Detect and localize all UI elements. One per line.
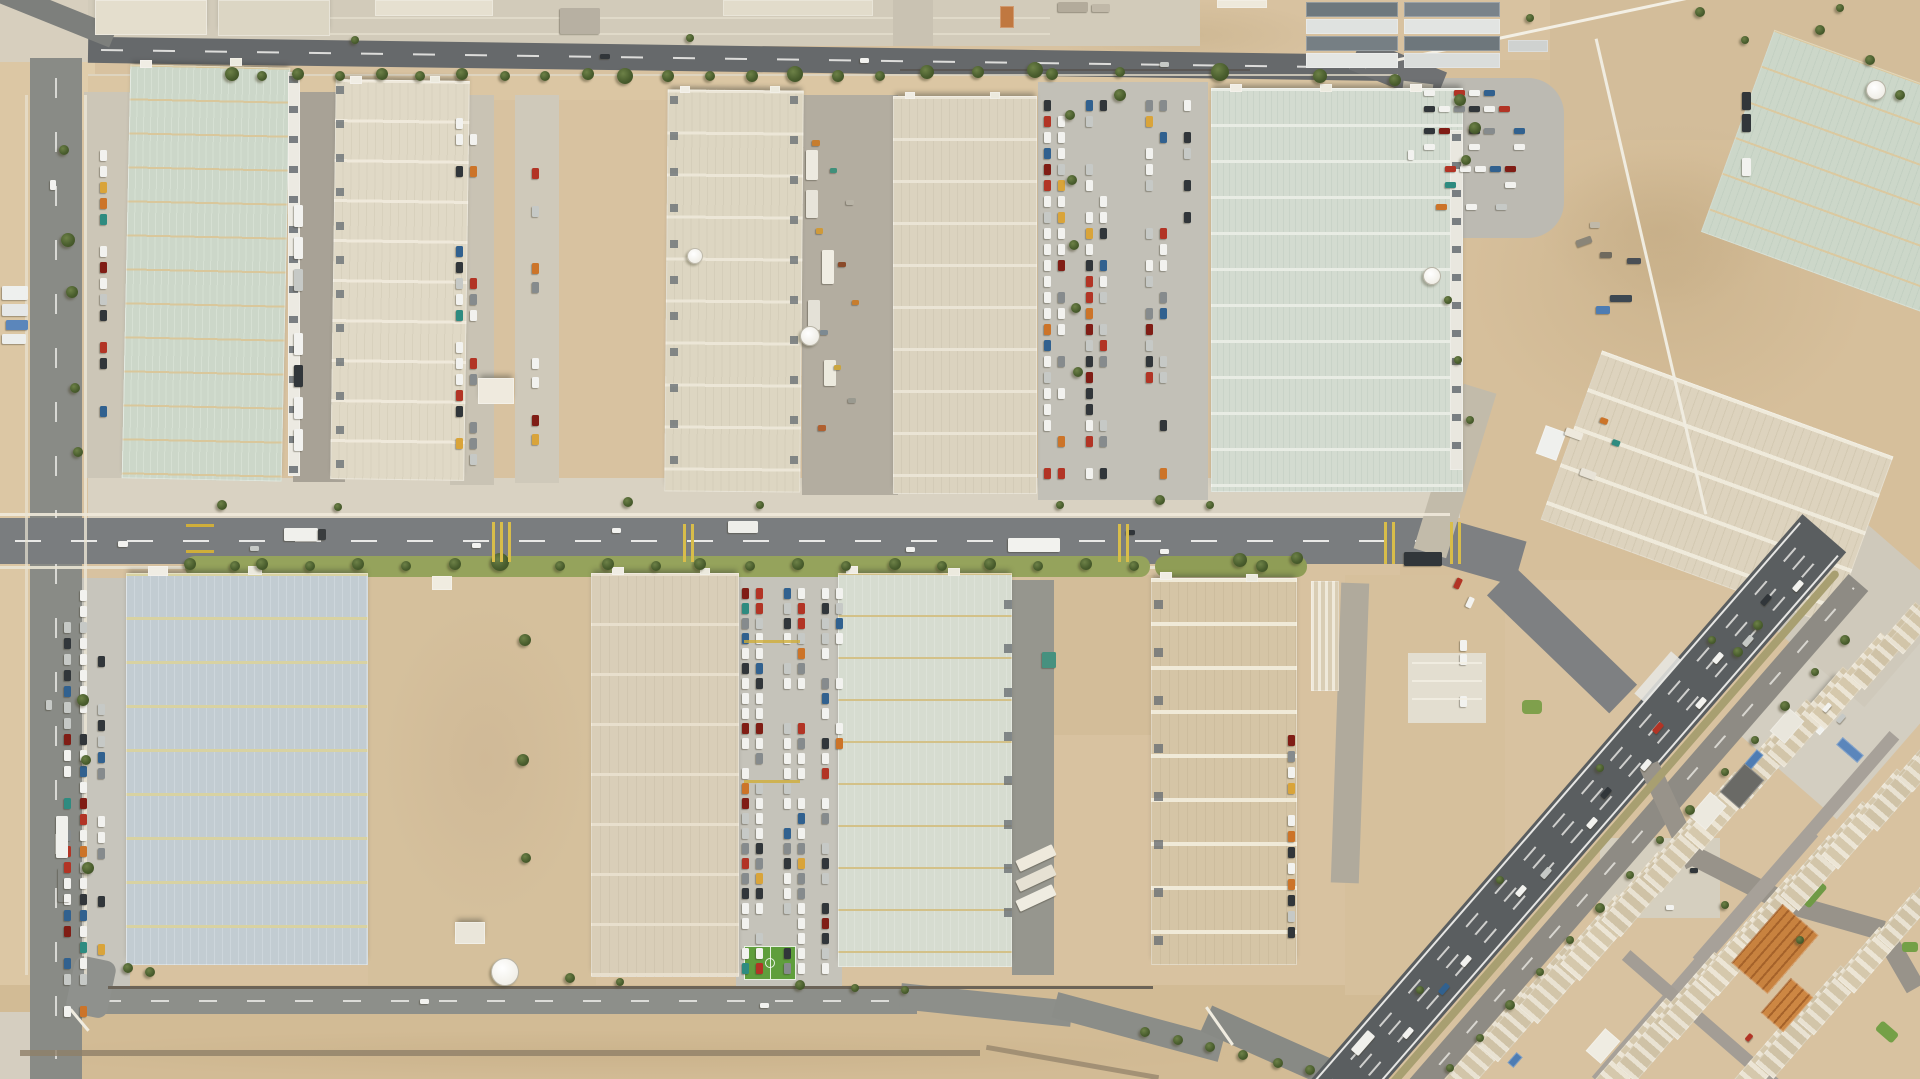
parked-car	[64, 718, 71, 729]
parked-car	[1044, 372, 1051, 383]
tree	[70, 383, 80, 393]
parked-car	[80, 830, 87, 841]
clutter	[2, 334, 26, 344]
warehouse-s3-mint	[838, 573, 1012, 967]
tree	[832, 70, 844, 82]
tree	[937, 561, 947, 571]
parked-car	[1288, 911, 1295, 922]
parked-car	[1496, 204, 1507, 210]
roof-unit	[350, 76, 362, 84]
parked-car	[456, 342, 463, 353]
parked-car	[100, 278, 107, 289]
parked-car	[1742, 158, 1751, 176]
parked-car	[1044, 468, 1051, 479]
parked-car	[80, 766, 87, 777]
parked-car	[1086, 276, 1093, 287]
tree	[1027, 62, 1043, 78]
clutter	[806, 190, 818, 218]
parked-car	[80, 926, 87, 937]
parked-car	[1058, 356, 1065, 367]
parked-car	[756, 828, 763, 839]
tree	[1033, 561, 1043, 571]
parked-car	[1160, 260, 1167, 271]
parked-car	[1160, 100, 1167, 111]
parked-car	[1160, 228, 1167, 239]
parked-car	[100, 310, 107, 321]
clutter	[818, 425, 826, 431]
parked-car	[798, 843, 805, 854]
parked-car	[1184, 180, 1191, 191]
parked-car	[822, 693, 829, 704]
parked-car	[1160, 308, 1167, 319]
parked-car	[80, 974, 87, 985]
parked-car	[798, 813, 805, 824]
car	[760, 1003, 769, 1008]
truck-left-road	[56, 816, 68, 858]
parked-car	[1424, 90, 1435, 96]
parked-car	[100, 150, 107, 161]
car	[420, 999, 429, 1004]
parked-car	[1058, 180, 1065, 191]
parked-car	[456, 374, 463, 385]
parked-car	[798, 618, 805, 629]
parked-car	[456, 358, 463, 369]
parked-car	[80, 846, 87, 857]
parked-car	[80, 654, 87, 665]
parked-car	[1288, 751, 1295, 762]
tree	[623, 497, 633, 507]
parked-car	[1058, 196, 1065, 207]
tree	[1721, 768, 1729, 776]
parked-car	[1044, 260, 1051, 271]
tree	[582, 68, 594, 80]
parked-car	[1044, 356, 1051, 367]
parked-car	[100, 358, 107, 369]
parked-car	[1469, 144, 1480, 150]
car	[472, 543, 481, 548]
green-res-2	[1875, 1020, 1899, 1043]
tree	[1496, 876, 1504, 884]
tree	[1526, 14, 1534, 22]
tree	[1741, 36, 1749, 44]
parked-car	[1288, 767, 1295, 778]
car	[1160, 549, 1169, 554]
clutter	[6, 320, 28, 330]
parked-car	[80, 910, 87, 921]
parked-car	[822, 948, 829, 959]
warehouse-sw-bluegray	[126, 573, 368, 965]
parked-car	[470, 166, 477, 177]
tree	[1080, 558, 1092, 570]
parked-car	[742, 828, 749, 839]
parked-car	[822, 903, 829, 914]
tree	[1626, 871, 1634, 879]
parked-car	[1160, 356, 1167, 367]
tree	[184, 558, 196, 570]
tree	[1476, 1034, 1484, 1042]
parked-car	[98, 816, 105, 827]
parked-car	[80, 1006, 87, 1017]
tree	[795, 980, 805, 990]
roof-unit	[990, 92, 1000, 99]
clutter	[834, 365, 841, 370]
parked-car	[1100, 420, 1107, 431]
parked-car	[532, 206, 539, 217]
tree	[540, 71, 550, 81]
parked-car	[822, 618, 829, 629]
ground-soft	[380, 600, 590, 920]
parked-car	[456, 278, 463, 289]
tree	[1796, 936, 1804, 944]
parked-car	[1146, 356, 1153, 367]
parked-car	[784, 618, 791, 629]
tree	[1721, 901, 1729, 909]
parked-car	[742, 708, 749, 719]
parked-car	[836, 618, 843, 629]
parked-car	[532, 415, 539, 426]
parked-car	[64, 622, 71, 633]
parked-car	[1086, 228, 1093, 239]
container-row	[1404, 36, 1500, 51]
parked-car	[742, 768, 749, 779]
slab-nw-b	[218, 0, 330, 36]
parked-car	[1058, 468, 1065, 479]
parked-car	[1058, 308, 1065, 319]
parked-car	[742, 663, 749, 674]
parked-car	[756, 723, 763, 734]
car	[1408, 150, 1414, 160]
parked-car	[1288, 831, 1295, 842]
warehouse-s2-beige	[591, 573, 739, 977]
parked-car	[742, 888, 749, 899]
pad-grid-line	[1412, 662, 1482, 664]
parked-car	[1469, 90, 1480, 96]
car	[1160, 62, 1169, 67]
warehouse-n2-beige	[330, 79, 470, 481]
parked-car	[470, 294, 477, 305]
parked-car	[98, 848, 105, 859]
parked-car	[756, 588, 763, 599]
hut-orange-top	[1000, 6, 1014, 28]
parked-car	[756, 678, 763, 689]
parked-car	[784, 768, 791, 779]
tree	[77, 694, 89, 706]
yellow-cross	[1118, 524, 1121, 562]
parked-car	[1086, 372, 1093, 383]
parked-car	[1058, 244, 1065, 255]
parked-car	[64, 798, 71, 809]
parked-car	[1086, 116, 1093, 127]
tree	[792, 558, 804, 570]
parked-car	[822, 798, 829, 809]
parked-car	[756, 843, 763, 854]
parked-car	[822, 633, 829, 644]
parked-car	[1742, 92, 1751, 110]
parked-car	[822, 738, 829, 749]
parked-car	[456, 246, 463, 257]
parked-car	[742, 948, 749, 959]
parked-car	[798, 738, 805, 749]
parked-car	[742, 738, 749, 749]
parked-car	[836, 738, 843, 749]
parked-car	[1184, 100, 1191, 111]
truck-mid-road-dark	[1404, 552, 1442, 566]
parked-car	[98, 944, 105, 955]
parked-car	[98, 768, 105, 779]
tree	[1046, 68, 1058, 80]
tree	[841, 561, 851, 571]
car	[612, 528, 621, 533]
yellow-stop	[186, 524, 214, 527]
shed-row-zigzag	[1311, 581, 1339, 691]
tree	[901, 986, 909, 994]
parked-car	[1100, 340, 1107, 351]
parked-car	[1044, 292, 1051, 303]
clutter	[830, 168, 837, 173]
tree	[61, 233, 75, 247]
parked-car	[470, 454, 477, 465]
parked-car	[742, 618, 749, 629]
parked-car	[742, 843, 749, 854]
parked-car	[532, 168, 539, 179]
parked-car	[470, 374, 477, 385]
parked-car	[784, 753, 791, 764]
warehouse-n3-beige	[664, 89, 804, 492]
parked-car	[64, 974, 71, 985]
dock-doors-w3e	[790, 96, 798, 486]
parked-car	[1469, 106, 1480, 112]
roof-unit	[140, 60, 152, 68]
yellow-cross	[683, 524, 686, 562]
parked-car	[1146, 100, 1153, 111]
parked-car	[756, 933, 763, 944]
parked-car	[784, 588, 791, 599]
tree	[1753, 620, 1763, 630]
parked-car	[798, 903, 805, 914]
car	[118, 541, 128, 547]
tree	[1733, 647, 1743, 657]
parked-car	[836, 723, 843, 734]
parked-car	[1086, 212, 1093, 223]
clutter	[2, 286, 28, 300]
parked-car	[1424, 106, 1435, 112]
parked-car	[1044, 164, 1051, 175]
parked-car	[470, 134, 477, 145]
truck-cab	[318, 529, 326, 540]
parked-car	[532, 282, 539, 293]
roof-unit	[1246, 574, 1258, 582]
tree	[1811, 668, 1819, 676]
median-grass-e	[1155, 556, 1307, 577]
tree	[1056, 501, 1064, 509]
parked-car	[822, 963, 829, 974]
parked-car	[1288, 863, 1295, 874]
parked-car	[756, 783, 763, 794]
green-gas	[1522, 700, 1542, 714]
tree	[555, 561, 565, 571]
stage	[0, 0, 1920, 1079]
tree	[449, 558, 461, 570]
parked-car	[294, 205, 303, 227]
road-se-connector	[1487, 567, 1637, 714]
tree	[1313, 69, 1327, 83]
parked-car	[98, 736, 105, 747]
warehouse-n4-beige	[893, 96, 1037, 494]
tree	[351, 36, 359, 44]
tree	[1305, 1065, 1315, 1075]
parked-car	[1505, 166, 1516, 172]
car	[860, 58, 869, 63]
tree	[401, 561, 411, 571]
parked-car	[1044, 308, 1051, 319]
parked-car	[98, 720, 105, 731]
parked-car	[1146, 276, 1153, 287]
res-row	[1877, 858, 1920, 950]
roof-unit	[770, 86, 780, 93]
container-small	[1508, 40, 1548, 52]
curb-left-e	[84, 95, 87, 975]
clutter	[1610, 295, 1632, 302]
parked-car	[1505, 182, 1516, 188]
parked-car	[742, 648, 749, 659]
parked-car	[64, 766, 71, 777]
tree	[745, 561, 755, 571]
parked-car	[456, 294, 463, 305]
parked-car	[100, 342, 107, 353]
parked-car	[1058, 260, 1065, 271]
tree	[1454, 356, 1462, 364]
parked-car	[1086, 308, 1093, 319]
roof-unit	[612, 567, 624, 575]
parked-car	[798, 888, 805, 899]
parked-car	[822, 708, 829, 719]
parked-car	[1100, 100, 1107, 111]
parked-car	[822, 768, 829, 779]
parked-car	[1460, 166, 1471, 172]
parked-car	[64, 926, 71, 937]
parked-car	[742, 783, 749, 794]
parked-car	[756, 618, 763, 629]
parked-car	[798, 723, 805, 734]
parked-car	[1160, 372, 1167, 383]
warehouse-nw-mint	[122, 64, 291, 481]
clutter	[822, 250, 834, 284]
parked-car	[784, 828, 791, 839]
tree	[1238, 1050, 1248, 1060]
parked-car	[1086, 292, 1093, 303]
parked-car	[1160, 132, 1167, 143]
parked-car	[64, 750, 71, 761]
clutter	[1092, 4, 1110, 12]
parked-car	[1044, 116, 1051, 127]
parked-car	[1086, 436, 1093, 447]
ground-patch	[1040, 575, 1155, 735]
parked-car	[742, 813, 749, 824]
car	[906, 547, 915, 552]
parked-car	[798, 948, 805, 959]
tree	[521, 853, 531, 863]
top-road-lane	[101, 49, 1396, 69]
parked-car	[798, 873, 805, 884]
tree	[651, 561, 661, 571]
dock-doors-b4w	[1154, 600, 1163, 960]
tree	[500, 71, 510, 81]
clutter	[1627, 258, 1641, 264]
parked-car	[742, 873, 749, 884]
parked-car	[1086, 244, 1093, 255]
middle-road-lane	[15, 540, 1438, 542]
clutter	[806, 150, 818, 180]
clutter	[846, 200, 854, 205]
tree	[1140, 1027, 1150, 1037]
parked-car	[822, 858, 829, 869]
parked-car	[470, 438, 477, 449]
tree	[1454, 94, 1466, 106]
parked-car	[1436, 204, 1447, 210]
tree	[1065, 110, 1075, 120]
yellow-cross	[1126, 524, 1129, 562]
tree	[1069, 240, 1079, 250]
container-row	[1306, 53, 1398, 68]
res-blue-tarp	[1507, 1052, 1522, 1068]
tree	[746, 70, 758, 82]
tree	[1205, 1042, 1215, 1052]
parked-car	[798, 828, 805, 839]
parked-car	[1044, 420, 1051, 431]
tree	[1173, 1035, 1183, 1045]
tree	[1840, 635, 1850, 645]
parked-car	[294, 397, 303, 419]
parked-car	[1146, 260, 1153, 271]
clutter	[1058, 2, 1088, 12]
tree	[920, 65, 934, 79]
parked-car	[100, 214, 107, 225]
parked-car	[1424, 144, 1435, 150]
parked-car	[1146, 180, 1153, 191]
parked-car	[784, 903, 791, 914]
parked-car	[798, 663, 805, 674]
parked-car	[822, 648, 829, 659]
truck-left-road	[58, 868, 70, 902]
tree	[1466, 416, 1474, 424]
parked-car	[1146, 228, 1153, 239]
parked-car	[742, 723, 749, 734]
parked-car	[756, 873, 763, 884]
parked-car	[80, 894, 87, 905]
fence-top-posts	[900, 69, 1250, 71]
car-res	[1690, 868, 1698, 873]
yellow-cross	[1384, 522, 1387, 564]
parked-car	[798, 798, 805, 809]
parked-car	[80, 782, 87, 793]
parked-car	[742, 903, 749, 914]
tree	[305, 561, 315, 571]
parked-car	[756, 888, 763, 899]
parked-car	[456, 166, 463, 177]
parked-car	[64, 702, 71, 713]
yellow-curb-p3	[744, 780, 800, 783]
roof-unit	[905, 92, 915, 99]
parked-car	[1146, 164, 1153, 175]
parked-car	[1044, 324, 1051, 335]
tree	[1067, 175, 1077, 185]
parked-car	[1146, 148, 1153, 159]
tree	[1536, 968, 1544, 976]
parked-car	[836, 588, 843, 599]
parked-car	[1086, 420, 1093, 431]
parked-car	[1288, 735, 1295, 746]
tree	[217, 500, 227, 510]
